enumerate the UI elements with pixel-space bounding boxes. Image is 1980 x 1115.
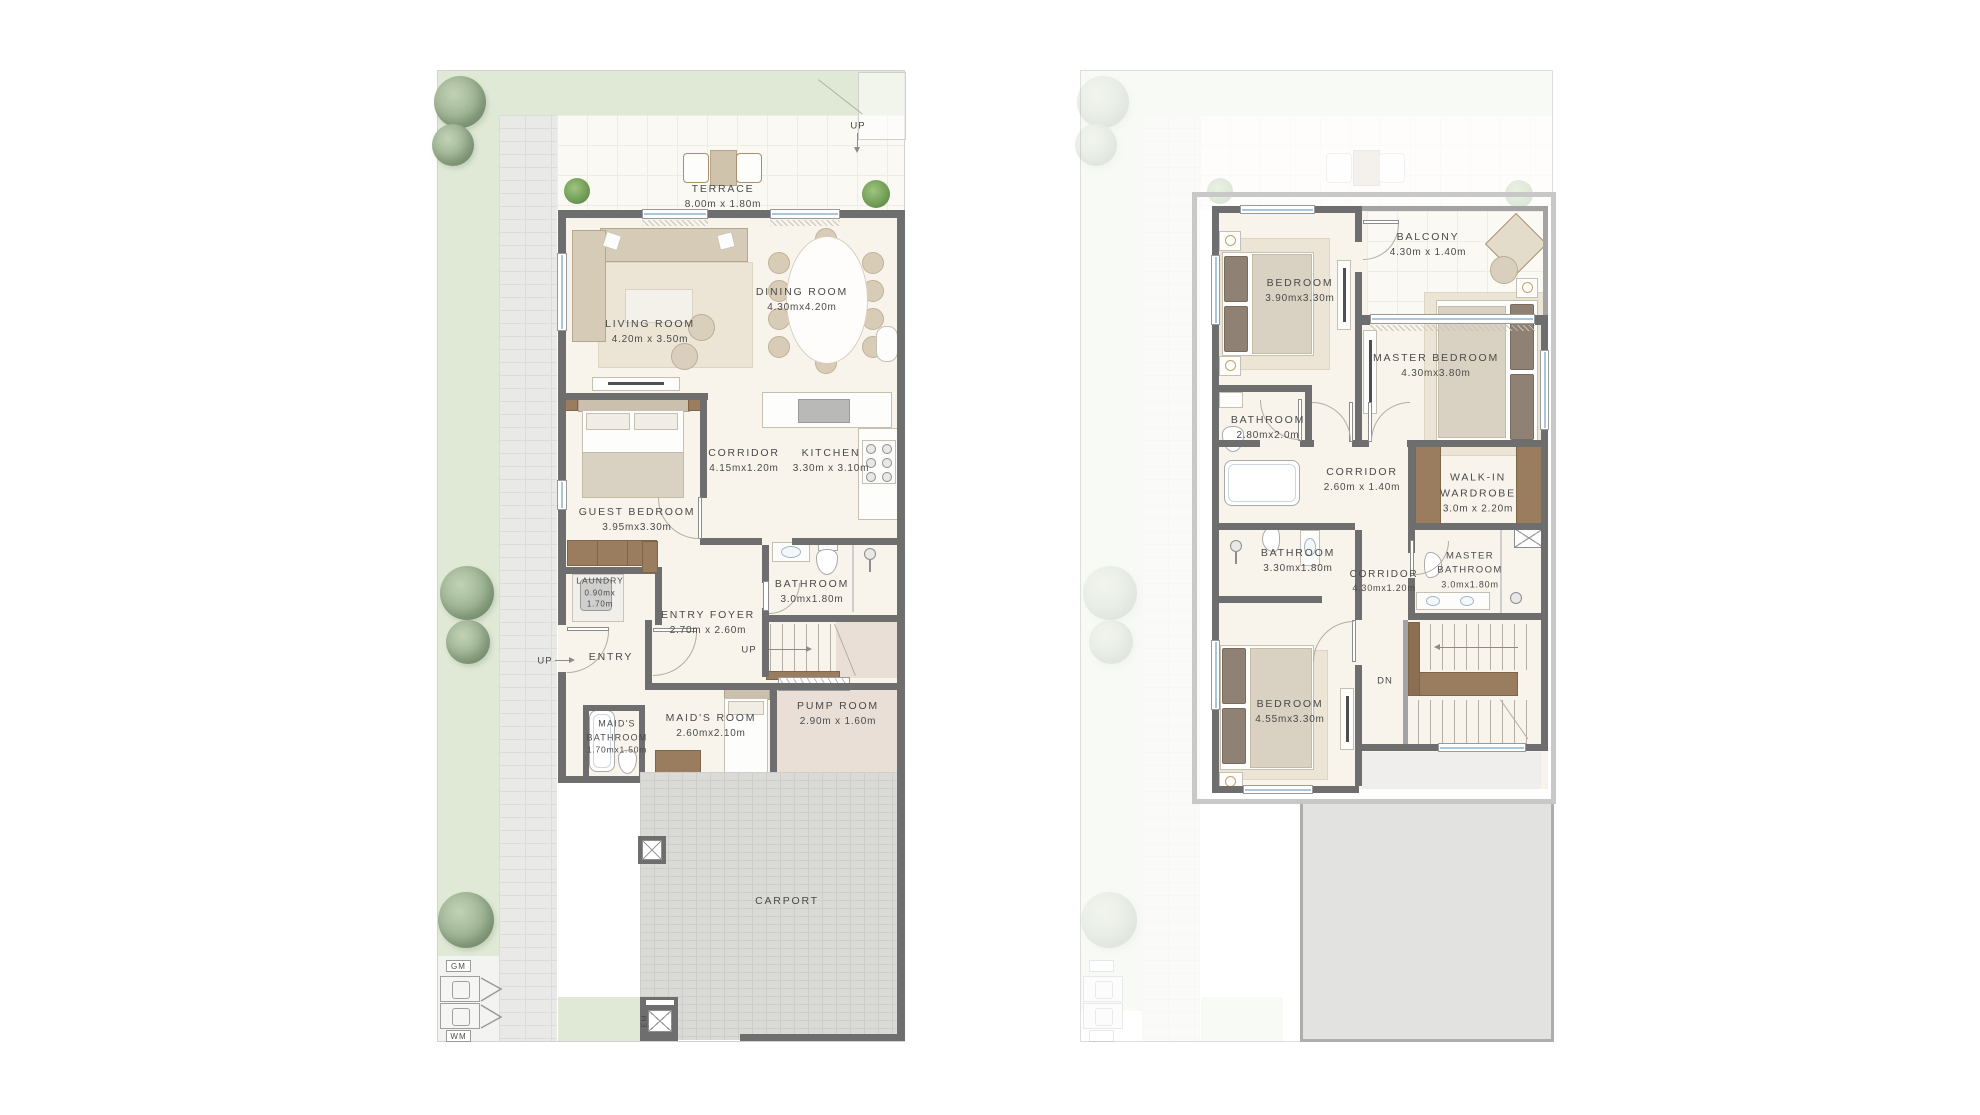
window [1240, 205, 1315, 214]
wardrobe-xbox [1514, 528, 1544, 548]
room-label-laundry: LAUNDRY 0.90mx 1.70m [571, 574, 629, 609]
shower-stem [1235, 552, 1237, 564]
wall [1212, 523, 1355, 530]
up-marker-entry: UP [537, 656, 552, 667]
bathtub [1224, 460, 1300, 506]
dn-marker: DN [1377, 676, 1393, 687]
room-label-pump-room: PUMP ROOM 2.90m x 1.60m [797, 699, 879, 729]
tv [1343, 268, 1346, 322]
nightstand-lamp [1522, 282, 1533, 293]
wall [1355, 318, 1362, 440]
floor-plan-canvas: UP [0, 0, 1980, 1115]
balcony-parapet [1362, 206, 1548, 211]
room-label-bathroom-top: BATHROOM 2.80mx2.0m [1231, 413, 1305, 443]
room-label-dining: DINING ROOM 4.30mx4.20m [756, 285, 848, 315]
up-marker-stairs: UP [741, 645, 756, 656]
wall [1408, 447, 1415, 523]
roof-strip [1362, 752, 1541, 789]
tv [1369, 340, 1372, 404]
blind-strip [1370, 325, 1535, 331]
wall [1305, 385, 1312, 447]
wall [1352, 440, 1369, 447]
room-label-bedroom-bottom: BEDROOM 4.55mx3.30m [1255, 697, 1324, 727]
room-label-bathroom: BATHROOM 3.0mx1.80m [775, 577, 849, 607]
bed-pillow [1510, 374, 1534, 440]
room-label-walkin-wardrobe: WALK-IN WARDROBE 3.0m x 2.20m [1426, 470, 1530, 516]
basin [1460, 596, 1474, 606]
window [1211, 640, 1220, 710]
ghost-ground-floor [0, 0, 1980, 1115]
room-label-bedroom-top: BEDROOM 3.90mx3.30m [1265, 276, 1334, 306]
wall [1408, 523, 1548, 530]
basin [1426, 596, 1440, 606]
balcony-parapet [1543, 206, 1548, 323]
room-label-entry-foyer: ENTRY FOYER 2.70m x 2.60m [661, 608, 755, 638]
stair-arrow-head [1434, 644, 1440, 650]
room-label-bathroom-mid: BATHROOM 3.30mx1.80m [1261, 546, 1335, 576]
wall [1355, 272, 1362, 318]
wall [1407, 440, 1545, 447]
bed-pillow [1222, 648, 1246, 704]
wall [1408, 613, 1548, 620]
room-label-master-bedroom: MASTER BEDROOM 4.30mx3.80m [1373, 351, 1499, 381]
wall [1355, 206, 1362, 242]
room-label-balcony: BALCONY 4.30m x 1.40m [1390, 230, 1467, 260]
window [1540, 350, 1549, 430]
wall [1362, 315, 1370, 325]
window [1438, 743, 1526, 752]
room-label-carport: CARPORT [755, 894, 819, 910]
stair-arrow [1440, 647, 1518, 648]
bed-pillow [1222, 708, 1246, 764]
window [1211, 255, 1220, 325]
shower-head-icon [1230, 540, 1242, 552]
bed-pillow [1224, 306, 1248, 352]
tv [1346, 696, 1349, 742]
room-label-corridor-upper: CORRIDOR 2.60m x 1.40m [1324, 465, 1401, 495]
wall [1212, 385, 1312, 392]
room-label-living: LIVING ROOM 4.20m x 3.50m [605, 317, 695, 347]
room-label-maids-bathroom: MAID'S BATHROOM 1.70mx1.50m [574, 718, 660, 757]
carport-roof-footprint [1300, 800, 1554, 1042]
sink [1219, 392, 1243, 408]
up-marker-gate: UP [850, 121, 865, 132]
stair-rail [1414, 672, 1518, 696]
nightstand-lamp [1225, 360, 1236, 371]
room-label-master-bathroom: MASTER BATHROOM 3.0mx1.80m [1424, 549, 1516, 590]
wall [1212, 596, 1322, 603]
wall [1541, 605, 1548, 751]
nightstand-lamp [1225, 235, 1236, 246]
room-label-terrace: TERRACE 8.00m x 1.80m [685, 182, 762, 212]
bed-pillow [1224, 256, 1248, 302]
stair-wall [1408, 622, 1420, 696]
stair-treads-lower [1418, 700, 1536, 744]
stair-side-wall [1403, 620, 1408, 744]
room-label-entry: ENTRY [589, 650, 633, 666]
room-label-guest-bedroom: GUEST BEDROOM 3.95mx3.30m [579, 505, 696, 535]
sliding-window [1370, 314, 1535, 324]
balcony-pouf [1490, 256, 1518, 284]
wall [1535, 315, 1548, 325]
shower-head-icon [1510, 592, 1522, 604]
em-label: EM [640, 1014, 649, 1027]
room-label-kitchen: KITCHEN 3.30m x 3.10m [793, 446, 870, 476]
room-label-corridor-main: CORRIDOR 4.30mx1.20m [1336, 567, 1432, 595]
wall [1355, 665, 1362, 786]
window [1243, 785, 1313, 794]
room-label-corridor: CORRIDOR 4.15mx1.20m [708, 446, 780, 476]
room-label-maids-room: MAID'S ROOM 2.60mx2.10m [666, 711, 757, 741]
